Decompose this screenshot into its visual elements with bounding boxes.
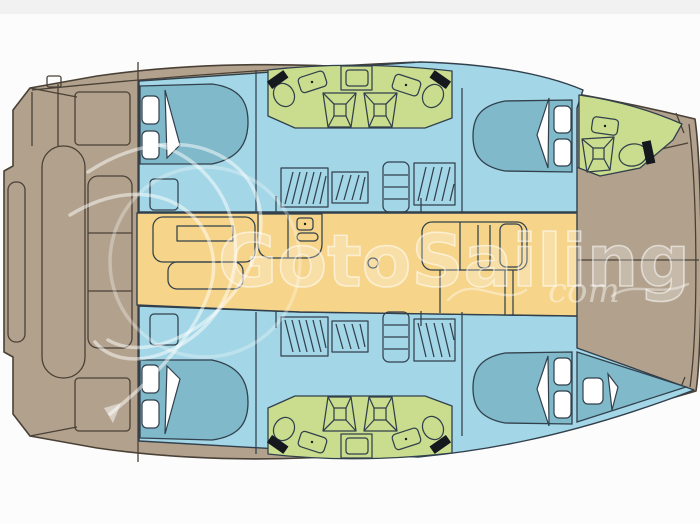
forepeak-pillow (583, 378, 603, 404)
watermark-suffix-text: com (548, 271, 620, 311)
aft-bed-pillow-1 (142, 96, 159, 124)
shared-heads-starboard-side (267, 396, 452, 459)
catamaran-floorplan: GotoSailing com (0, 0, 700, 524)
page-top-band (0, 0, 700, 14)
floorplan-page: GotoSailing com (0, 0, 700, 524)
fwd-bed-pillow-1 (554, 106, 571, 133)
heads-floor (268, 65, 452, 128)
fwd-bed-pillow-2 (554, 139, 571, 166)
shared-heads-port-side (267, 65, 452, 128)
